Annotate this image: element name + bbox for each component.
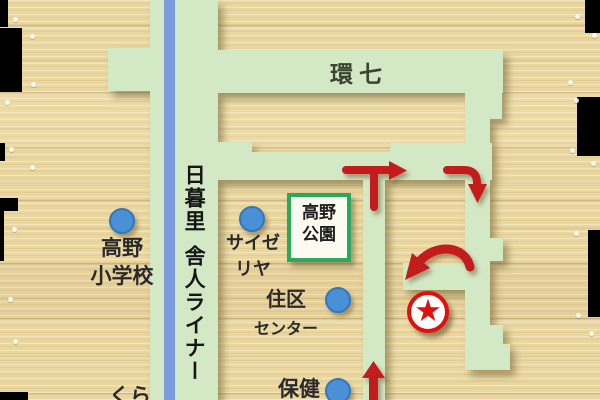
star-icon: ★ — [414, 296, 442, 327]
koya-park-label-line1: 高野 — [291, 202, 347, 224]
juku-center-label: 住区 センター — [244, 284, 328, 344]
route-up-arrow — [362, 361, 385, 400]
saizeriya-label: サイゼ リヤ — [212, 231, 294, 283]
route-up-right-arrow — [346, 161, 407, 207]
access-map: 日暮里舎人ライナー 環七 高野 公園 高野 小学校 — [0, 0, 600, 400]
route-right-down-arrow — [447, 170, 487, 203]
destination-star-marker: ★ — [407, 291, 449, 333]
route-turn-left-swoosh-arrow — [405, 249, 470, 280]
hoken-label: 保健 — [269, 373, 329, 400]
koya-park-box: 高野 公園 — [287, 193, 351, 262]
koya-park-label-line2: 公園 — [291, 224, 347, 246]
poi-dot-juku-center — [325, 287, 351, 313]
poi-dot-saizeriya — [239, 206, 265, 232]
kura-label: くら — [100, 380, 160, 400]
koya-elementary-label: 高野 小学校 — [72, 234, 172, 290]
poi-dot-koya-elementary — [109, 208, 135, 234]
